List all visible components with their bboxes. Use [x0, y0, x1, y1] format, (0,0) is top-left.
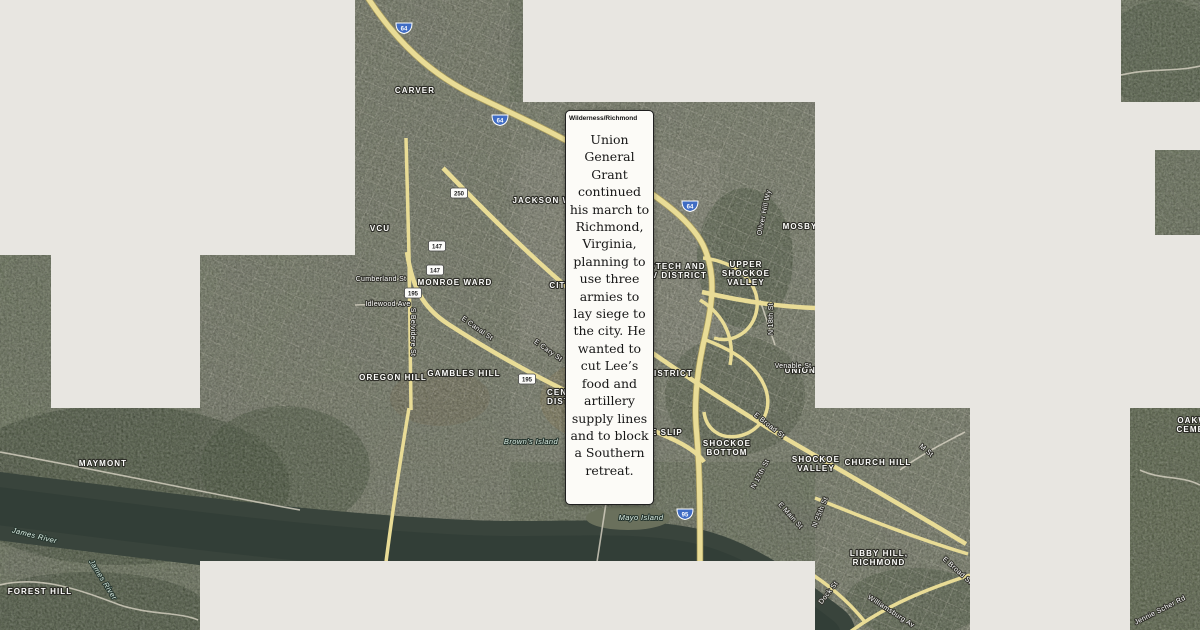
- map-label-mayo-island: Mayo Island: [619, 513, 664, 522]
- map-viewport: 64646495250147147195195 CARVERVCUJACKSON…: [0, 0, 1200, 630]
- info-popup-body: Union General Grant continued his march …: [569, 131, 650, 479]
- svg-text:147: 147: [432, 244, 443, 250]
- svg-text:250: 250: [454, 191, 465, 197]
- svg-text:64: 64: [497, 118, 504, 124]
- map-label-shockoe-valley: SHOCKOEVALLEY: [792, 455, 840, 473]
- svg-text:195: 195: [522, 377, 533, 383]
- map-label-oregon-hill: OREGON HILL: [359, 373, 427, 382]
- map-label-gambles-hill: GAMBLES HILL: [427, 369, 500, 378]
- svg-text:195: 195: [408, 291, 419, 297]
- route-195-shield: 195: [519, 374, 536, 384]
- map-label-shockoe-bottom: SHOCKOEBOTTOM: [703, 439, 751, 457]
- map-label-s-belvidere-st: S Belvidere St: [409, 308, 416, 357]
- map-label-forest-hill: FOREST HILL: [8, 587, 73, 596]
- map-label-monroe-ward: MONROE WARD: [418, 278, 493, 287]
- route-147-shield: 147: [429, 241, 446, 251]
- svg-text:147: 147: [430, 268, 441, 274]
- map-label-maymont: MAYMONT: [79, 459, 127, 468]
- map-label-district: DISTRICT: [647, 369, 693, 378]
- map-label-brown-s-island: Brown's Island: [504, 437, 559, 446]
- map-label-carver: CARVER: [395, 86, 435, 95]
- map-label-n-18th-st: N 18th St: [768, 303, 775, 335]
- info-popup: Wilderness/Richmond Union General Grant …: [565, 110, 654, 505]
- map-label-oakwood-cemetery: OAKWOODCEMETERY: [1177, 416, 1200, 434]
- map-label-mosby: MOSBY: [783, 222, 818, 231]
- map-label-libby-hill-richmond: LIBBY HILL,RICHMOND: [850, 549, 908, 567]
- map-label-idlewood-ave: Idlewood Ave: [365, 301, 410, 308]
- map-label-church-hill: CHURCH HILL: [845, 458, 912, 467]
- route-195-shield: 195: [405, 288, 422, 298]
- map-label-vcu: VCU: [370, 224, 390, 233]
- info-popup-title: Wilderness/Richmond: [569, 115, 650, 123]
- svg-text:95: 95: [682, 512, 689, 518]
- map-label-cumberland-st: Cumberland St: [356, 276, 407, 283]
- route-147-shield: 147: [427, 265, 444, 275]
- route-250-shield: 250: [451, 188, 468, 198]
- svg-text:64: 64: [687, 204, 694, 210]
- svg-text:64: 64: [401, 26, 408, 32]
- map-label-venable-st: Venable St: [775, 363, 812, 370]
